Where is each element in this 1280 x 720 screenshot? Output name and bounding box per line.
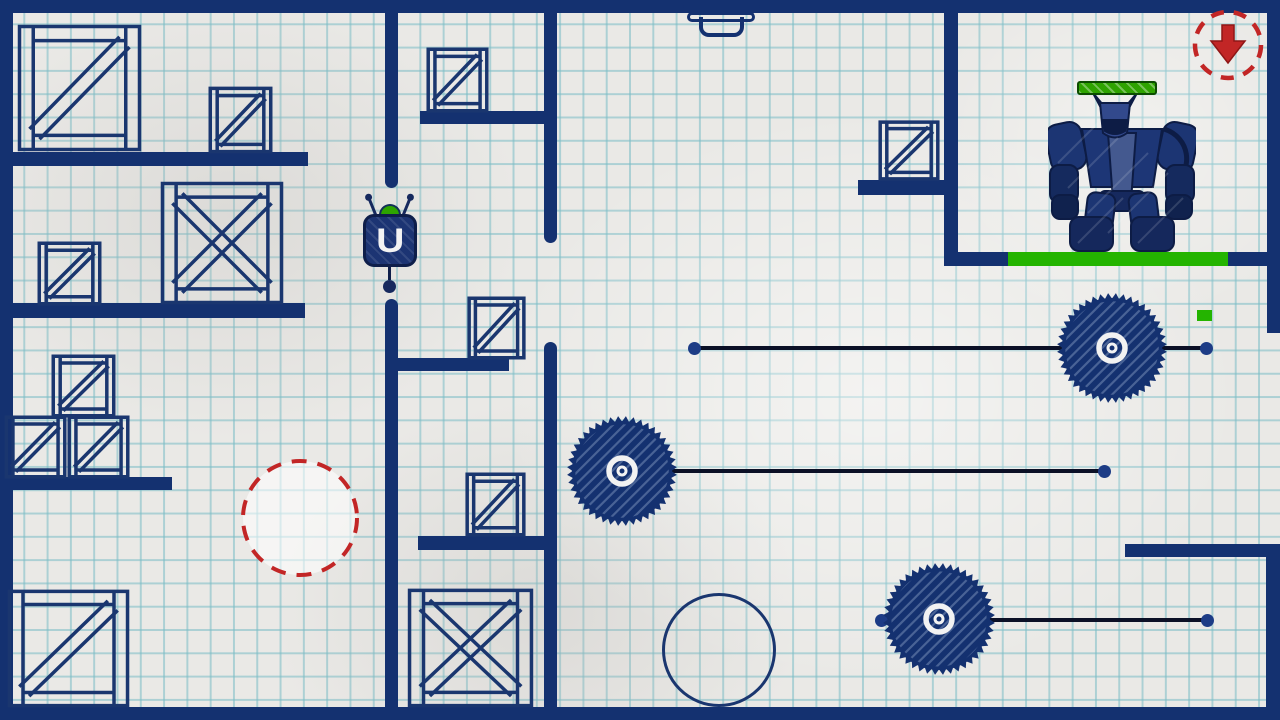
saw-blade	[561, 410, 683, 532]
crate	[427, 48, 488, 112]
wall	[1266, 544, 1280, 720]
crate	[209, 87, 272, 153]
saw-blade	[877, 557, 1001, 681]
player-symbol: U	[376, 224, 404, 258]
green-platform	[1197, 310, 1212, 321]
rail-end-dot	[688, 342, 701, 355]
wall	[0, 152, 308, 166]
crate	[160, 181, 284, 305]
rail-end-dot	[1201, 614, 1214, 627]
crate	[407, 588, 534, 708]
rail-end-dot	[1098, 465, 1111, 478]
green-platform	[1008, 252, 1228, 266]
wall	[1267, 0, 1280, 333]
wall	[0, 0, 1280, 13]
wall	[944, 252, 1008, 266]
exit-arrow-icon	[1211, 25, 1245, 63]
wall	[1125, 544, 1280, 557]
exit-marker	[1191, 8, 1265, 82]
crate	[468, 297, 525, 359]
rail-end-dot	[1200, 342, 1213, 355]
boss-robot	[1048, 93, 1196, 253]
teleport-marker[interactable]	[239, 457, 361, 579]
wall	[418, 536, 557, 550]
wall	[944, 0, 958, 266]
sketch-circle	[662, 593, 776, 707]
saw-blade	[1051, 287, 1173, 409]
player-magnet-bot[interactable]: U	[355, 196, 425, 296]
wall	[420, 111, 557, 124]
wall	[385, 0, 398, 188]
crate	[879, 121, 939, 180]
claw-dispenser	[683, 0, 763, 42]
claw-hook-icon	[699, 17, 744, 37]
crate	[52, 355, 115, 417]
wall	[0, 477, 172, 490]
pendulum-line	[388, 267, 391, 280]
crate	[466, 473, 525, 536]
wall	[0, 707, 1280, 720]
game-stage[interactable]: U	[0, 0, 1280, 720]
wall	[858, 180, 958, 195]
wall	[1228, 252, 1280, 266]
crate	[5, 416, 66, 478]
wall	[395, 358, 509, 371]
crate	[68, 416, 129, 478]
boss-health-bar	[1077, 81, 1157, 95]
crate	[7, 589, 130, 708]
saw-rail	[620, 469, 1104, 473]
crate	[38, 242, 101, 305]
wall	[544, 342, 557, 720]
player-body: U	[363, 214, 417, 267]
pendulum-weight	[383, 280, 396, 293]
crate	[17, 24, 142, 152]
